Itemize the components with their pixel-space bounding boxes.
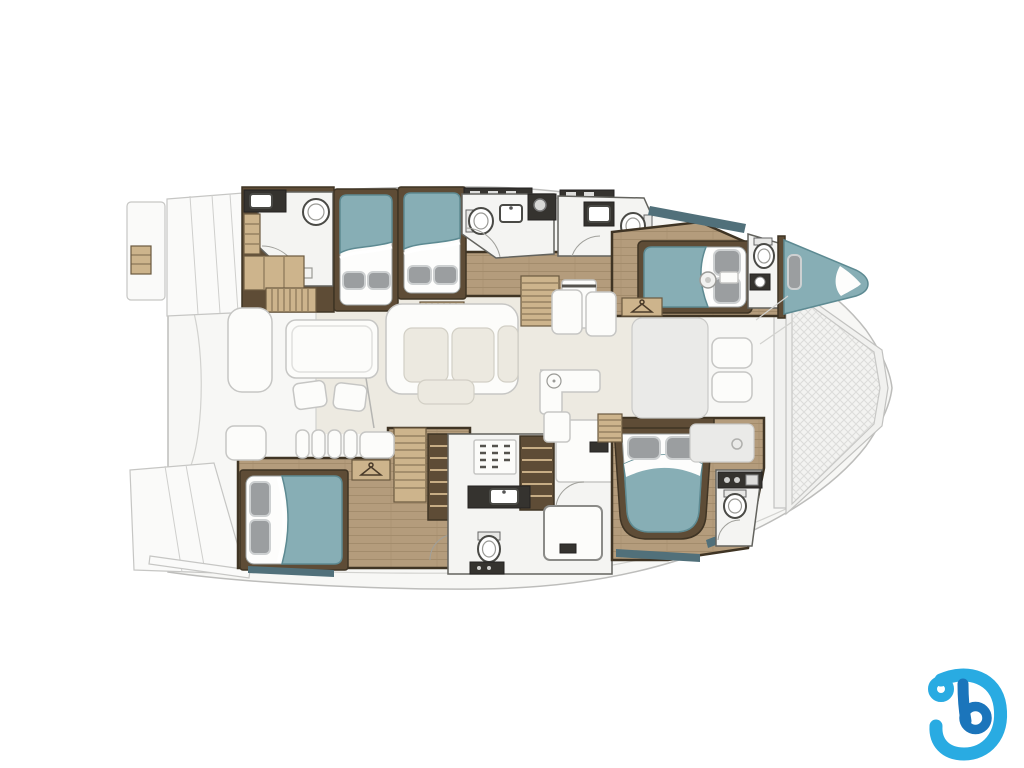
windlass [720,272,738,283]
coachroof-panel [632,318,708,418]
foredeck-seat [712,338,752,368]
port-aft-cabinet [244,256,304,290]
cockpit-seat [360,432,394,458]
port-stern-steps [167,193,252,316]
foredeck-locker [690,424,754,462]
starboard-forward-head [716,470,762,546]
floorplan-image: Catamaran yacht deck and cabin floor pla… [0,0,1024,768]
toilet [478,536,500,562]
galley-cabinet [544,412,570,442]
toilet [754,244,774,268]
cockpit-table [286,320,378,378]
foredeck-seat [712,372,752,402]
brand-logo [933,675,1001,754]
nav-seat [552,290,582,334]
sink [588,206,610,222]
cockpit-bench-side [228,308,272,392]
catamaran-floorplan-svg: Catamaran yacht deck and cabin floor pla… [0,0,1024,768]
port-aft-sink [250,194,272,208]
cockpit-chair [292,380,327,410]
toilet [724,494,746,518]
starboard-mid-head [448,420,618,574]
port-bow-head [748,234,782,308]
port-transom-step [131,246,151,274]
toilet [469,208,493,234]
port-berth-1 [334,189,398,311]
port-aft-basin [303,199,329,225]
nav-desk [586,292,616,336]
cockpit-bench-aft [226,426,266,460]
cockpit-chair [333,382,368,412]
